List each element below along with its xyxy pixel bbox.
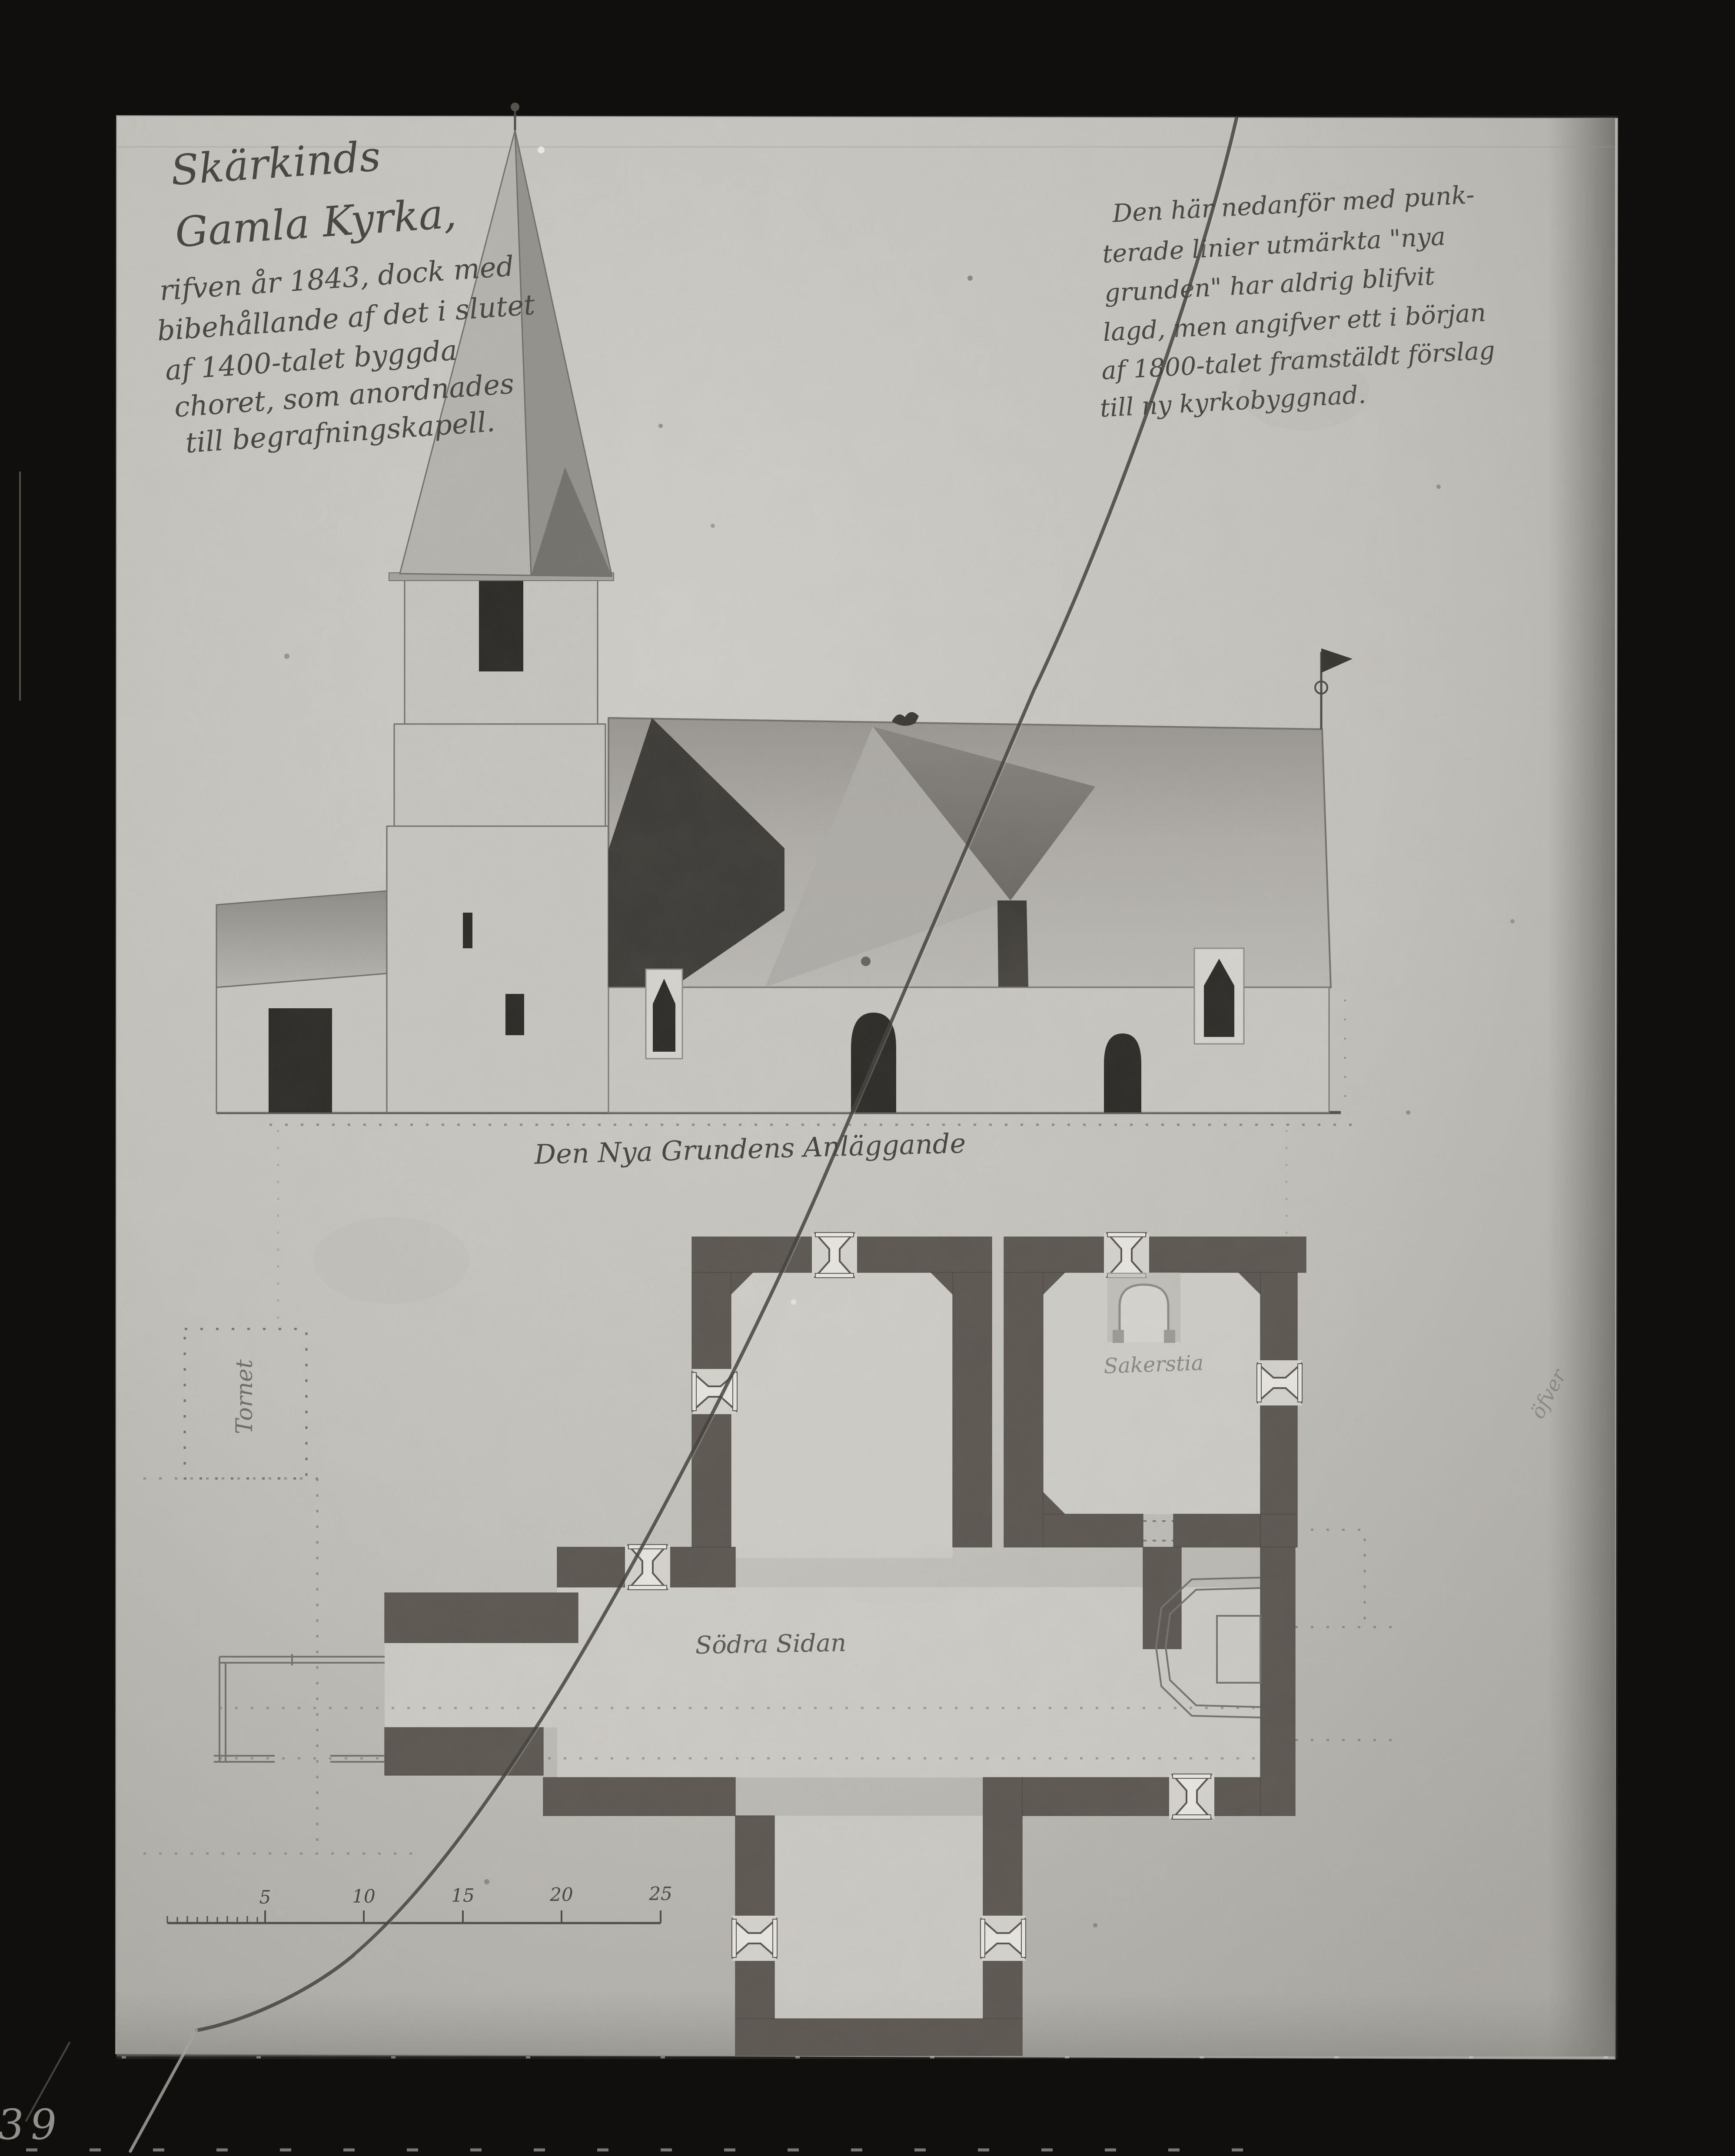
photograph-of-church-drawing: 5 10 15 20 25 Skärkinds Gamla Kyrka, rif… xyxy=(0,0,1735,2156)
spire-finial-icon xyxy=(511,103,519,111)
archive-number: - 536ᵃ. 139 xyxy=(0,2100,66,2149)
drawing-canvas: 5 10 15 20 25 Skärkinds Gamla Kyrka, rif… xyxy=(0,0,1735,2156)
tonal-blotch-overlay xyxy=(116,116,1618,2059)
